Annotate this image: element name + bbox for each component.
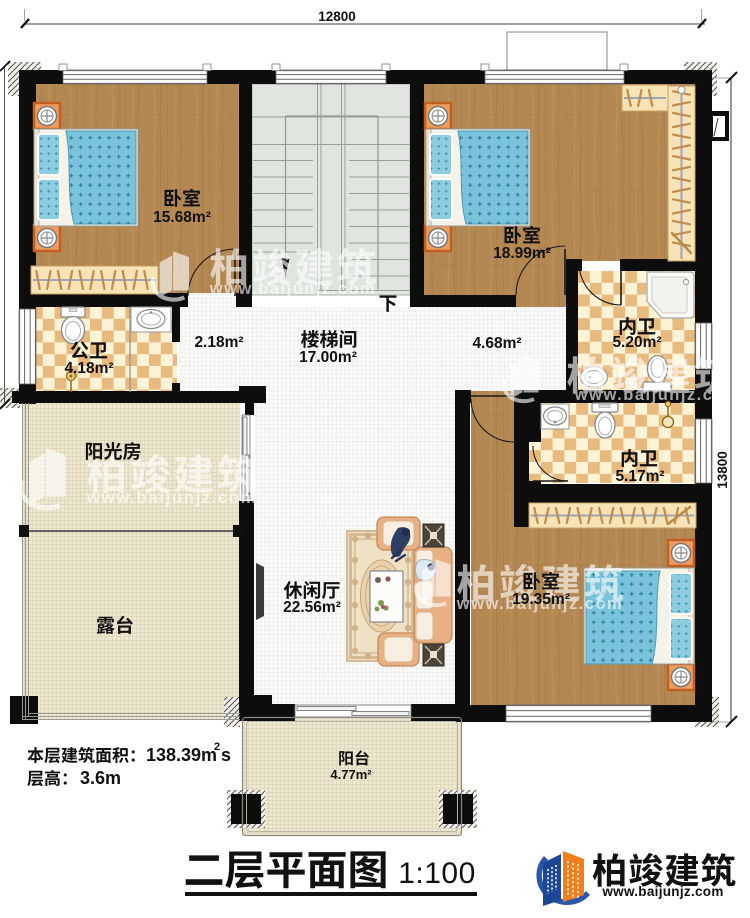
svg-text:1:100: 1:100 <box>398 857 476 890</box>
svg-text:4.77m²: 4.77m² <box>330 767 372 782</box>
svg-text:www.baijunjz.com: www.baijunjz.com <box>86 488 258 507</box>
svg-text:s: s <box>221 745 231 765</box>
svg-text:13800: 13800 <box>715 451 730 489</box>
svg-text:3.6m: 3.6m <box>80 768 121 788</box>
svg-text:17.00m²: 17.00m² <box>299 349 357 366</box>
svg-text:5.20m²: 5.20m² <box>612 334 661 351</box>
svg-text:4.18m²: 4.18m² <box>64 360 113 377</box>
svg-text:22.56m²: 22.56m² <box>283 599 341 616</box>
svg-text:www.baijunjz.com: www.baijunjz.com <box>209 280 376 298</box>
svg-text:138.39m: 138.39m <box>146 745 217 765</box>
svg-text:18.99m²: 18.99m² <box>493 245 551 262</box>
svg-text:12800: 12800 <box>318 9 356 24</box>
svg-text:19.35m²: 19.35m² <box>512 591 570 608</box>
svg-text:www.baijunjz.com: www.baijunjz.com <box>574 386 741 404</box>
svg-text:5.17m²: 5.17m² <box>615 468 664 485</box>
svg-text:2: 2 <box>214 741 220 753</box>
svg-text:15.68m²: 15.68m² <box>153 209 211 226</box>
svg-text:2.18m²: 2.18m² <box>194 334 243 351</box>
svg-text:4.68m²: 4.68m² <box>472 335 521 352</box>
svg-text:www.baijunjz.com: www.baijunjz.com <box>601 884 723 899</box>
